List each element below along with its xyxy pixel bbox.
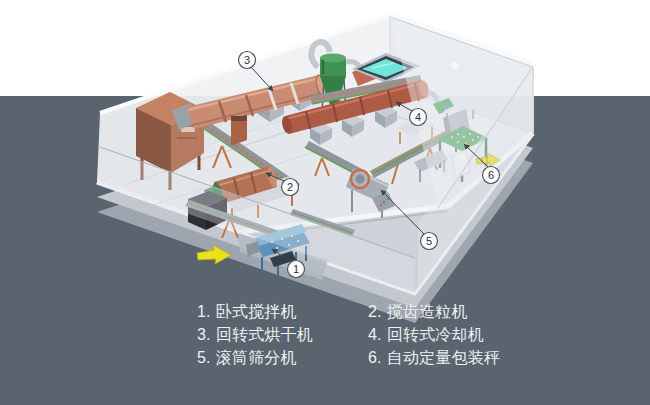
- callout-1-number: 1: [293, 263, 299, 275]
- legend-item-3: 3.回转式烘干机: [197, 325, 368, 346]
- callout-2: 2: [282, 179, 299, 196]
- legend-item-number: 2.: [368, 303, 382, 320]
- callout-3: 3: [239, 52, 256, 69]
- legend-item-6: 6.自动定量包装秤: [368, 348, 500, 369]
- callout-6-number: 6: [488, 169, 494, 181]
- legend-item-label: 搅齿造粒机: [387, 303, 468, 320]
- legend-item-2: 2.搅齿造粒机: [368, 302, 500, 323]
- callout-2-number: 2: [287, 181, 293, 193]
- legend-item-label: 回转式冷却机: [387, 326, 484, 343]
- callout-1: 1: [288, 261, 305, 278]
- legend-item-label: 回转式烘干机: [216, 326, 313, 343]
- callout-4-number: 4: [415, 111, 421, 123]
- equipment-legend: 1.卧式搅拌机 2.搅齿造粒机 3.回转式烘干机 4.回转式冷却机 5.滚筒筛分…: [197, 301, 500, 370]
- legend-item-number: 3.: [197, 326, 211, 343]
- legend-item-label: 卧式搅拌机: [216, 303, 297, 320]
- legend-item-number: 5.: [197, 349, 211, 366]
- legend-item-number: 1.: [197, 303, 211, 320]
- legend-item-1: 1.卧式搅拌机: [197, 302, 368, 323]
- legend-item-5: 5.滚筒筛分机: [197, 348, 368, 369]
- legend-item-4: 4.回转式冷却机: [368, 325, 500, 346]
- callout-5-number: 5: [426, 235, 432, 247]
- legend-item-number: 4.: [368, 326, 382, 343]
- legend-item-label: 自动定量包装秤: [387, 349, 500, 366]
- callout-6: 6: [483, 167, 500, 184]
- callout-4: 4: [410, 109, 427, 126]
- legend-item-number: 6.: [368, 349, 382, 366]
- legend-item-label: 滚筒筛分机: [216, 349, 297, 366]
- callout-3-number: 3: [244, 54, 250, 66]
- callout-5: 5: [421, 233, 438, 250]
